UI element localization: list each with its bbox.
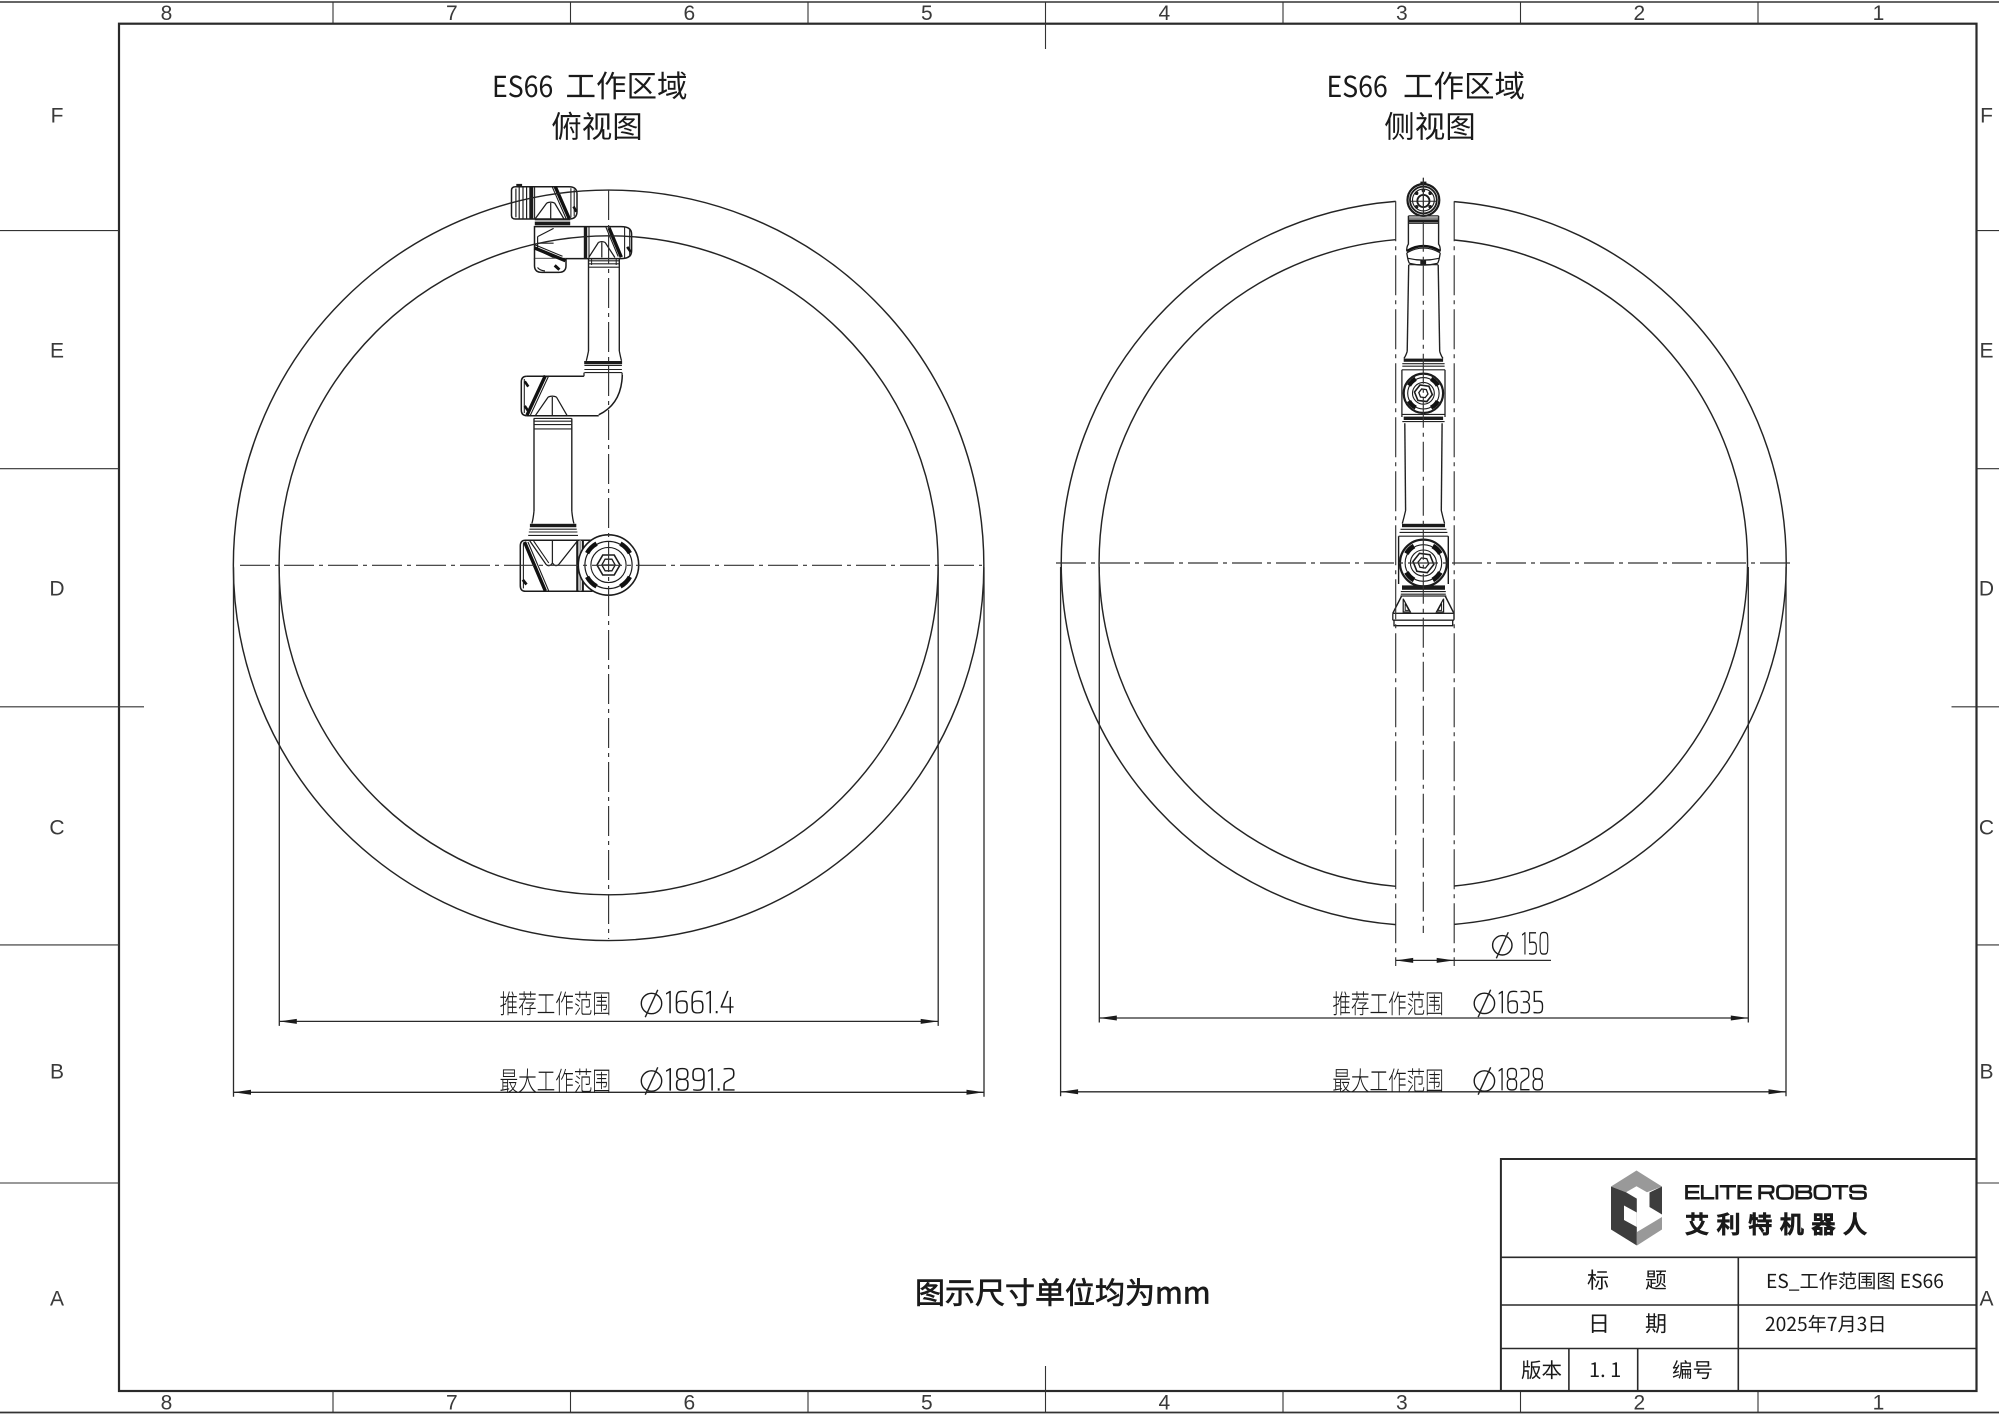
svg-text:D: D — [49, 578, 64, 601]
svg-text:F: F — [51, 105, 64, 128]
svg-text:4: 4 — [1158, 1392, 1170, 1414]
svg-text:3: 3 — [1396, 2, 1408, 25]
svg-text:4: 4 — [1158, 2, 1170, 25]
svg-text:8: 8 — [161, 1392, 173, 1414]
svg-text:F: F — [1980, 105, 1993, 128]
svg-text:B: B — [50, 1061, 64, 1084]
svg-text:B: B — [1979, 1061, 1993, 1084]
svg-text:5: 5 — [921, 1392, 933, 1414]
svg-text:6: 6 — [683, 1392, 695, 1414]
svg-text:D: D — [1979, 578, 1994, 601]
svg-text:C: C — [49, 817, 64, 840]
svg-text:E: E — [50, 340, 64, 363]
svg-text:2: 2 — [1633, 1392, 1645, 1414]
svg-text:C: C — [1979, 817, 1994, 840]
svg-text:8: 8 — [161, 2, 173, 25]
svg-text:6: 6 — [683, 2, 695, 25]
svg-text:1: 1 — [1873, 2, 1885, 25]
svg-text:5: 5 — [921, 2, 933, 25]
svg-text:A: A — [50, 1288, 64, 1311]
svg-text:A: A — [1979, 1288, 1993, 1311]
svg-text:3: 3 — [1396, 1392, 1408, 1414]
svg-text:2: 2 — [1633, 2, 1645, 25]
svg-text:E: E — [1979, 340, 1993, 363]
svg-text:7: 7 — [446, 2, 458, 25]
svg-text:7: 7 — [446, 1392, 458, 1414]
svg-text:1: 1 — [1873, 1392, 1885, 1414]
